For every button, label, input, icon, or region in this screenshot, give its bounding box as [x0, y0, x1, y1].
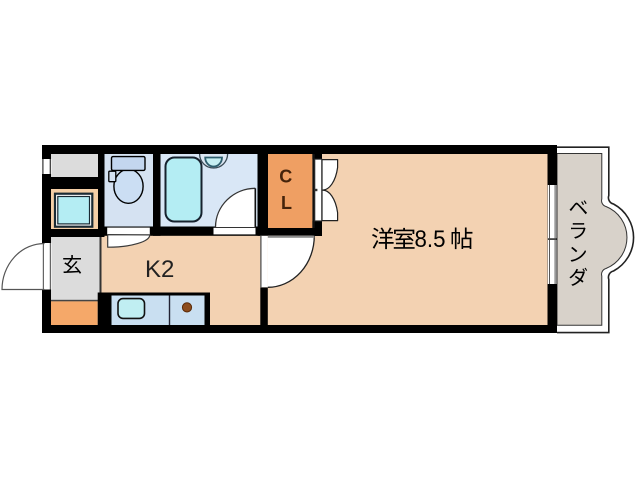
svg-text:L: L — [281, 193, 292, 213]
svg-text:C: C — [279, 166, 292, 186]
svg-text:K2: K2 — [145, 256, 174, 283]
svg-text:8.5: 8.5 — [415, 226, 446, 253]
